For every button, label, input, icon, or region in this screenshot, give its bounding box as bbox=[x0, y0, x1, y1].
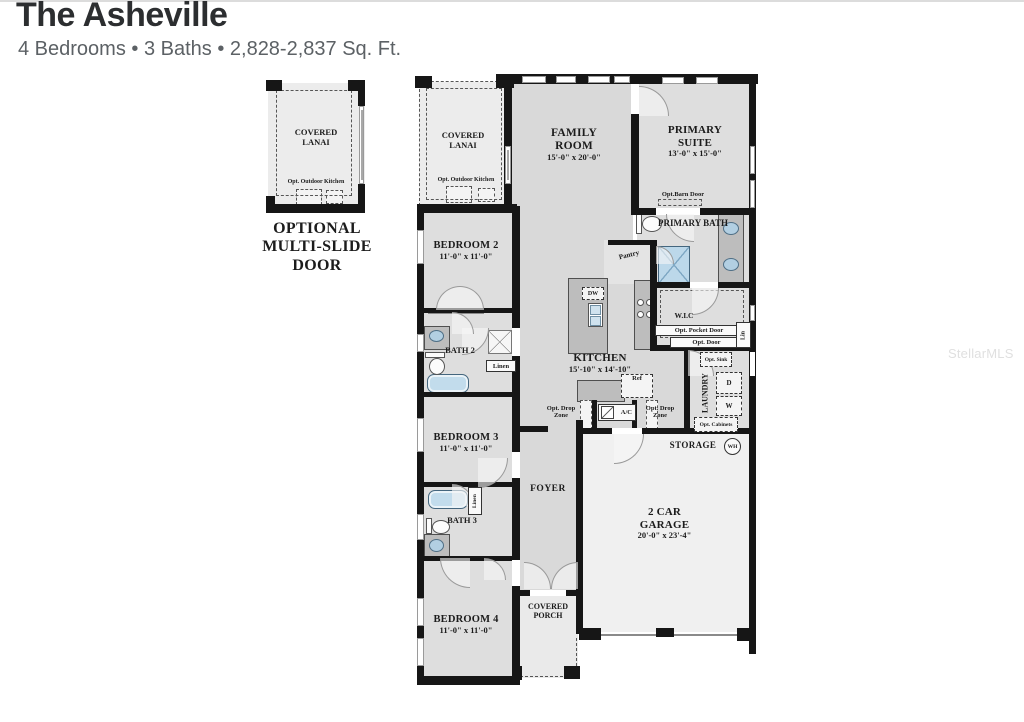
dashed-outline bbox=[658, 199, 702, 206]
plan-wall bbox=[420, 482, 514, 487]
sink-icon bbox=[429, 330, 444, 342]
washer-label: W bbox=[716, 396, 742, 416]
kitchen-name: KITCHEN bbox=[573, 352, 626, 364]
drop-zone-left-label: Opt. Drop Zone bbox=[544, 405, 578, 420]
family-room-label: FAMILY ROOM 15'-0" x 20'-0" bbox=[526, 127, 622, 163]
door-opening bbox=[512, 328, 520, 356]
opt-outdoor-kitchen-label: Opt. Outdoor Kitchen bbox=[424, 177, 508, 184]
bedroom4-dims: 11'-0" x 11'-0" bbox=[420, 626, 512, 636]
inset-opt-outdoor-kitchen-label: Opt. Outdoor Kitchen bbox=[270, 179, 362, 186]
window bbox=[417, 638, 424, 666]
door-opening bbox=[530, 590, 566, 596]
plan-wall bbox=[564, 666, 580, 679]
bath2-label: BATH 2 bbox=[442, 346, 478, 356]
plan-wall bbox=[417, 204, 517, 213]
inset-caption: OPTIONAL MULTI-SLIDE DOOR bbox=[250, 220, 384, 275]
kitchen-label: KITCHEN 15'-10" x 14'-10" bbox=[548, 352, 652, 374]
bath3-label: BATH 3 bbox=[444, 516, 480, 526]
garage-label: 2 CAR GARAGE 20'-0" x 23'-4" bbox=[612, 506, 717, 541]
island-sink-basin-icon bbox=[590, 305, 601, 315]
plan-wall bbox=[592, 400, 597, 432]
plan-wall bbox=[656, 628, 674, 637]
opt-pocket-door-label: Opt. Pocket Door bbox=[655, 325, 743, 336]
bedroom3-dims: 11'-0" x 11'-0" bbox=[420, 444, 512, 454]
garage-dims: 20'-0" x 23'-4" bbox=[612, 531, 717, 541]
island-sink-basin-icon bbox=[590, 316, 601, 326]
plan-wall bbox=[504, 84, 512, 206]
floor-plan-page: The Asheville 4 Bedrooms • 3 Baths • 2,8… bbox=[0, 0, 1024, 722]
door-opening bbox=[750, 352, 755, 376]
foyer-label: FOYER bbox=[520, 484, 576, 495]
garage-name: 2 CAR GARAGE bbox=[637, 506, 692, 531]
window bbox=[750, 305, 755, 321]
window bbox=[588, 76, 610, 83]
door-opening bbox=[512, 560, 520, 586]
dashed-edge bbox=[421, 81, 503, 82]
window bbox=[417, 514, 424, 540]
bedroom3-label: BEDROOM 3 11'-0" x 11'-0" bbox=[420, 432, 512, 454]
sink-icon bbox=[429, 539, 444, 552]
door-opening bbox=[512, 452, 520, 478]
opt-cabinets-label: Opt. Cabinets bbox=[694, 417, 738, 432]
bathtub-icon bbox=[427, 374, 469, 393]
bedroom2-dims: 11'-0" x 11'-0" bbox=[420, 252, 512, 262]
primary-suite-label: PRIMARY SUITE 13'-0" x 15'-0" bbox=[648, 124, 742, 159]
window bbox=[556, 76, 576, 83]
primary-bath-label: PRIMARY BATH bbox=[658, 218, 728, 228]
opt-door-label: Opt. Door bbox=[670, 337, 743, 348]
sink-icon bbox=[723, 258, 739, 271]
plan-wall bbox=[579, 628, 601, 640]
plan-wall bbox=[608, 240, 654, 245]
opt-barn-door-label: Opt.Barn Door bbox=[652, 191, 714, 198]
plan-wall bbox=[512, 206, 520, 685]
bedroom2-label: BEDROOM 2 11'-0" x 11'-0" bbox=[420, 240, 512, 262]
linen-closet-lin-label: Lin bbox=[736, 322, 751, 348]
inset-covered-lanai-label: COVERED LANAI bbox=[283, 128, 349, 148]
plan-wall bbox=[737, 628, 756, 641]
cooktop-burner-icon bbox=[637, 311, 644, 318]
refrigerator-label: Ref bbox=[621, 374, 653, 398]
plan-wall bbox=[266, 204, 365, 213]
cooktop-burner-icon bbox=[637, 299, 644, 306]
opt-sink-label: Opt. Sink bbox=[700, 352, 732, 367]
window bbox=[750, 180, 755, 208]
sliding-door-icon bbox=[507, 150, 509, 180]
kitchen-dims: 15'-10" x 14'-10" bbox=[548, 365, 652, 375]
sliding-door-icon bbox=[361, 110, 363, 180]
plan-wall bbox=[576, 420, 583, 634]
corner-closet-icon bbox=[488, 330, 512, 354]
plan-wall bbox=[266, 196, 275, 210]
window bbox=[614, 76, 630, 83]
water-heater-label: WH bbox=[724, 438, 741, 455]
bath3-linen-label: Linen bbox=[468, 487, 482, 515]
window bbox=[750, 146, 755, 174]
family-room-name: FAMILY ROOM bbox=[543, 127, 605, 153]
primary-suite-dims: 13'-0" x 15'-0" bbox=[648, 149, 742, 159]
bedroom4-label: BEDROOM 4 11'-0" x 11'-0" bbox=[420, 614, 512, 636]
plan-wall bbox=[358, 80, 365, 106]
toilet-icon bbox=[429, 358, 445, 375]
plan-wall bbox=[512, 426, 548, 432]
door-opening bbox=[631, 84, 639, 114]
dryer-label: D bbox=[716, 372, 742, 394]
bedroom2-name: BEDROOM 2 bbox=[433, 240, 498, 251]
primary-suite-name: PRIMARY SUITE bbox=[663, 124, 727, 149]
wic-label: W.I.C bbox=[664, 312, 704, 321]
bedroom4-name: BEDROOM 4 bbox=[433, 614, 498, 625]
window bbox=[696, 77, 718, 84]
laundry-label: LAUNDRY bbox=[698, 362, 712, 424]
plan-wall bbox=[512, 666, 522, 680]
plan-wall bbox=[266, 80, 282, 91]
covered-porch-label: COVERED PORCH bbox=[524, 602, 572, 620]
window bbox=[522, 76, 546, 83]
dashed-edge bbox=[419, 84, 420, 206]
ac-text: A/C bbox=[621, 409, 632, 416]
bath2-linen-label: Linen bbox=[486, 360, 516, 372]
plan-wall bbox=[417, 676, 518, 685]
plan-wall bbox=[420, 392, 514, 397]
window bbox=[417, 334, 424, 352]
ac-unit-label: A/C bbox=[598, 404, 636, 421]
plan-wall bbox=[415, 76, 432, 88]
ac-diagonal-icon bbox=[601, 406, 614, 419]
drop-zone-right-label: Opt. Drop Zone bbox=[642, 405, 678, 420]
dishwasher-label: DW bbox=[582, 287, 604, 300]
window bbox=[662, 77, 684, 84]
bedroom3-name: BEDROOM 3 bbox=[433, 432, 498, 443]
storage-label: STORAGE bbox=[664, 440, 722, 450]
family-room-dims: 15'-0" x 20'-0" bbox=[526, 153, 622, 163]
covered-lanai-label: COVERED LANAI bbox=[432, 131, 494, 151]
counter bbox=[577, 380, 625, 402]
